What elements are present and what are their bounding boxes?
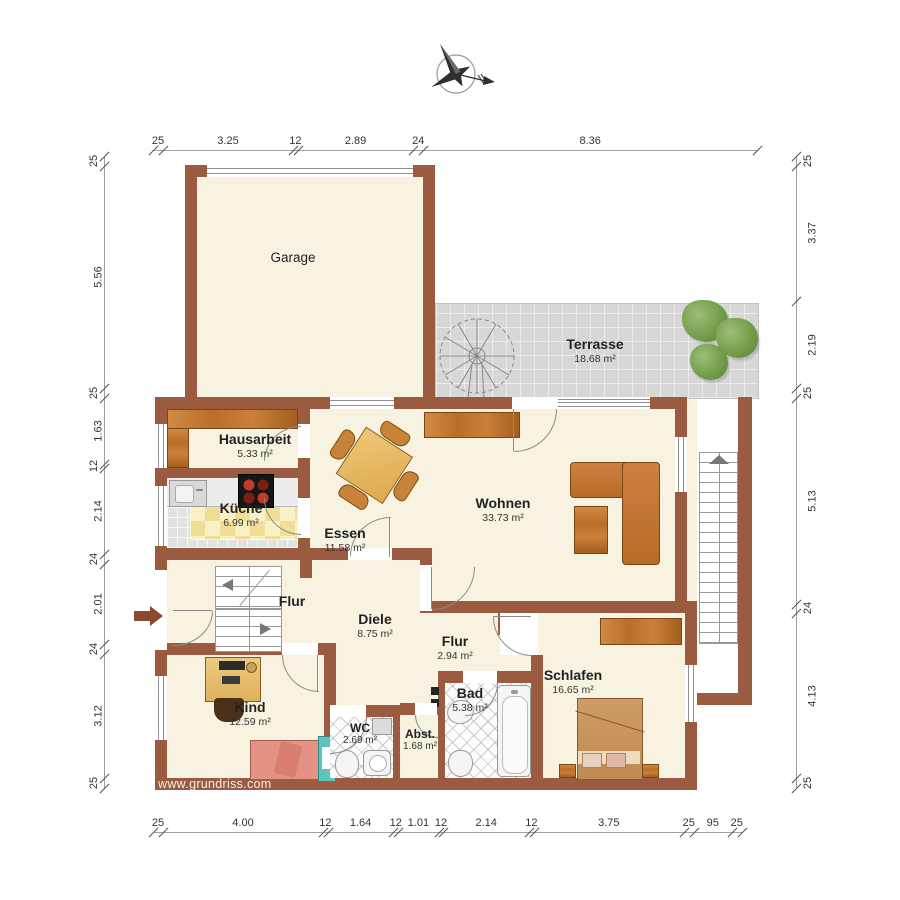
room-label-wc: WC 2.69 m² (332, 722, 388, 748)
door-kind-opening (282, 643, 318, 655)
exterior-staircase-divider (719, 453, 720, 643)
room-area: 5.33 m² (200, 448, 310, 461)
hausarbeit-counter-top (167, 409, 298, 429)
sideboard (424, 412, 520, 438)
door-terrace-opening (512, 397, 558, 409)
dimension-label: 4.13 (807, 685, 819, 706)
dimension-label: 2.89 (345, 135, 366, 147)
coffee-table (574, 506, 608, 554)
dimension-label: 1.63 (93, 420, 105, 441)
dimension-line (153, 150, 757, 151)
room-area: 1.68 m² (394, 741, 446, 754)
dimension-label: 2.14 (475, 817, 496, 829)
bed-duvet-line (575, 710, 644, 732)
room-name: WC (332, 722, 388, 735)
room-label-essen: Essen 11.58 m² (305, 526, 385, 555)
room-label-terrasse: Terrasse 18.68 m² (545, 337, 645, 366)
wall-flur-diele-stub (300, 560, 312, 578)
sink-basin (175, 485, 194, 503)
room-name: Abst. (394, 728, 446, 741)
dimension-label: 5.56 (93, 266, 105, 287)
stair-bottom-wall (697, 693, 752, 705)
room-area: 5.38 m² (440, 702, 500, 715)
kind-bed-duvet-fold (273, 741, 302, 778)
stair-right-wall (738, 397, 752, 705)
entrance-arrow-icon (134, 611, 150, 621)
double-bed (577, 698, 643, 780)
room-name: Diele (345, 612, 405, 628)
entrance-arrow-head (150, 606, 163, 626)
garage-floor (185, 165, 435, 409)
room-label-kueche: Küche 6.99 m² (196, 501, 286, 530)
dimension-label: 12 (390, 817, 402, 829)
room-label-flur2: Flur 2.94 m² (425, 634, 485, 663)
kind-bed (250, 740, 322, 780)
dimension-label: 5.13 (807, 490, 819, 511)
room-name: Flur (425, 634, 485, 650)
bed-pillow (582, 753, 602, 768)
room-label-garage: Garage (243, 250, 343, 265)
room-label-diele: Diele 8.75 m² (345, 612, 405, 641)
dimension-label: 1.01 (408, 817, 429, 829)
room-area: 11.58 m² (305, 542, 385, 555)
dimension-label: 12 (88, 460, 100, 472)
room-name: Essen (305, 526, 385, 542)
room-label-schlafen: Schlafen 16.65 m² (528, 668, 618, 697)
dimension-label: 25 (802, 387, 814, 399)
wall-hausarbeit-kueche (155, 468, 310, 478)
room-area: 2.69 m² (332, 735, 388, 748)
room-label-flur: Flur (262, 594, 322, 610)
room-area: 18.68 m² (545, 353, 645, 366)
dimension-label: 3.75 (598, 817, 619, 829)
door-leaf-kind (317, 655, 318, 691)
door-leaf-terrace (513, 409, 514, 451)
stair-arrow-up (222, 579, 233, 591)
dimension-chain-left: 255.56251.63122.14242.01243.1225 (88, 156, 114, 790)
spiral-stair-icon (432, 308, 518, 400)
room-name: Schlafen (528, 668, 618, 684)
room-name: Terrasse (545, 337, 645, 353)
sink-faucet (196, 489, 203, 491)
dimension-label: 8.36 (579, 135, 600, 147)
room-name: Wohnen (448, 496, 558, 512)
nightstand (642, 764, 659, 778)
dimension-chain-right: 253.372.19255.13244.1325 (792, 156, 818, 790)
desk (205, 657, 261, 702)
room-area: 2.94 m² (425, 650, 485, 663)
wc-toilet (335, 750, 359, 778)
window-wohnen-right (675, 437, 687, 492)
room-name: Küche (196, 501, 286, 517)
dimension-label: 24 (88, 553, 100, 565)
dimension-label: 2.19 (807, 334, 819, 355)
room-area: 6.99 m² (196, 517, 286, 530)
door-bad-opening (463, 671, 497, 683)
monitor (219, 661, 245, 670)
window-hausarbeit (155, 424, 167, 468)
compass-icon (420, 32, 496, 108)
garage-right-wall (423, 165, 435, 409)
dimension-label: 25 (152, 135, 164, 147)
exterior-staircase (699, 452, 738, 644)
exterior-stair-arrow (709, 455, 729, 464)
bed-pillow (606, 753, 626, 768)
window-essen-top (330, 397, 394, 409)
dimension-label: 12 (525, 817, 537, 829)
bathtub-inner (502, 696, 528, 774)
room-name: Bad (440, 686, 500, 702)
dimension-chain-top: 253.25122.89248.36 (153, 134, 759, 160)
dimension-label: 12 (435, 817, 447, 829)
bathtub (497, 685, 531, 777)
keyboard (222, 676, 240, 684)
door-abst-opening (415, 703, 437, 715)
wc-sink (363, 750, 391, 776)
floor-plan: Garage Terrasse 18.68 m² Hausarbeit 5.33… (0, 0, 900, 900)
wall-kueche-flur (155, 548, 312, 560)
nightstand (559, 764, 576, 778)
room-area: 33.73 m² (448, 512, 558, 525)
door-leaf-essen (389, 517, 390, 557)
wardrobe (600, 618, 682, 645)
dimension-label: 25 (683, 817, 695, 829)
room-label-bad: Bad 5.38 m² (440, 686, 500, 715)
watermark: www.grundriss.com (158, 777, 271, 791)
bathtub-faucet (511, 690, 518, 694)
dimension-label: 95 (707, 817, 719, 829)
window-kueche (155, 486, 167, 546)
stair-arrow-down (260, 623, 271, 635)
hausarbeit-counter-left (167, 428, 189, 468)
dimension-label: 3.25 (217, 135, 238, 147)
door-leaf-schlafen (493, 616, 531, 617)
dimension-label: 25 (802, 777, 814, 789)
dimension-label: 2.14 (93, 500, 105, 521)
room-name: Garage (243, 250, 343, 265)
sofa-right-arm (622, 462, 660, 565)
window-kind (155, 676, 167, 740)
room-name: Hausarbeit (200, 432, 310, 448)
dimension-label: 25 (731, 817, 743, 829)
room-area: 16.65 m² (528, 684, 618, 697)
dimension-chain-bottom: 254.00121.64121.01122.14123.75259525 (153, 816, 743, 842)
room-name: Kind (210, 700, 290, 716)
dimension-label: 3.37 (807, 223, 819, 244)
room-label-kind: Kind 12.59 m² (210, 700, 290, 729)
door-leaf-wohnen (431, 567, 432, 609)
dimension-label: 3.12 (93, 705, 105, 726)
desk-lamp (246, 662, 257, 673)
window-schlafen-right (685, 665, 697, 722)
window-terrace-slider (558, 397, 650, 409)
dimension-label: 25 (802, 155, 814, 167)
shaft-marker (431, 687, 439, 695)
garage-door (207, 165, 413, 177)
room-label-wohnen: Wohnen 33.73 m² (448, 496, 558, 525)
room-label-abstell: Abst. 1.68 m² (394, 728, 446, 754)
room-name: Flur (262, 594, 322, 610)
dimension-label: 25 (88, 777, 100, 789)
dimension-label: 24 (412, 135, 424, 147)
dimension-label: 12 (289, 135, 301, 147)
dimension-label: 25 (152, 817, 164, 829)
room-area: 12.59 m² (210, 716, 290, 729)
dimension-line (796, 156, 797, 788)
dimension-label: 25 (88, 387, 100, 399)
dimension-label: 12 (319, 817, 331, 829)
plant-icon (690, 344, 728, 380)
bad-toilet (448, 750, 473, 777)
garage-left-wall (185, 165, 197, 409)
room-area: 8.75 m² (345, 628, 405, 641)
dimension-label: 2.01 (93, 593, 105, 614)
room-label-hausarbeit: Hausarbeit 5.33 m² (200, 432, 310, 461)
house-right-wall-upper (675, 397, 687, 613)
door-leaf-entrance (173, 610, 212, 611)
dimension-line (104, 156, 105, 788)
dimension-label: 25 (88, 155, 100, 167)
wc-sink-basin (369, 755, 387, 772)
dimension-label: 4.00 (232, 817, 253, 829)
wall-wohnen-schlafen (432, 601, 697, 613)
dimension-label: 24 (88, 643, 100, 655)
dimension-label: 1.64 (350, 817, 371, 829)
dimension-label: 24 (802, 602, 814, 614)
dimension-line (153, 832, 742, 833)
door-wc-opening (330, 705, 366, 717)
